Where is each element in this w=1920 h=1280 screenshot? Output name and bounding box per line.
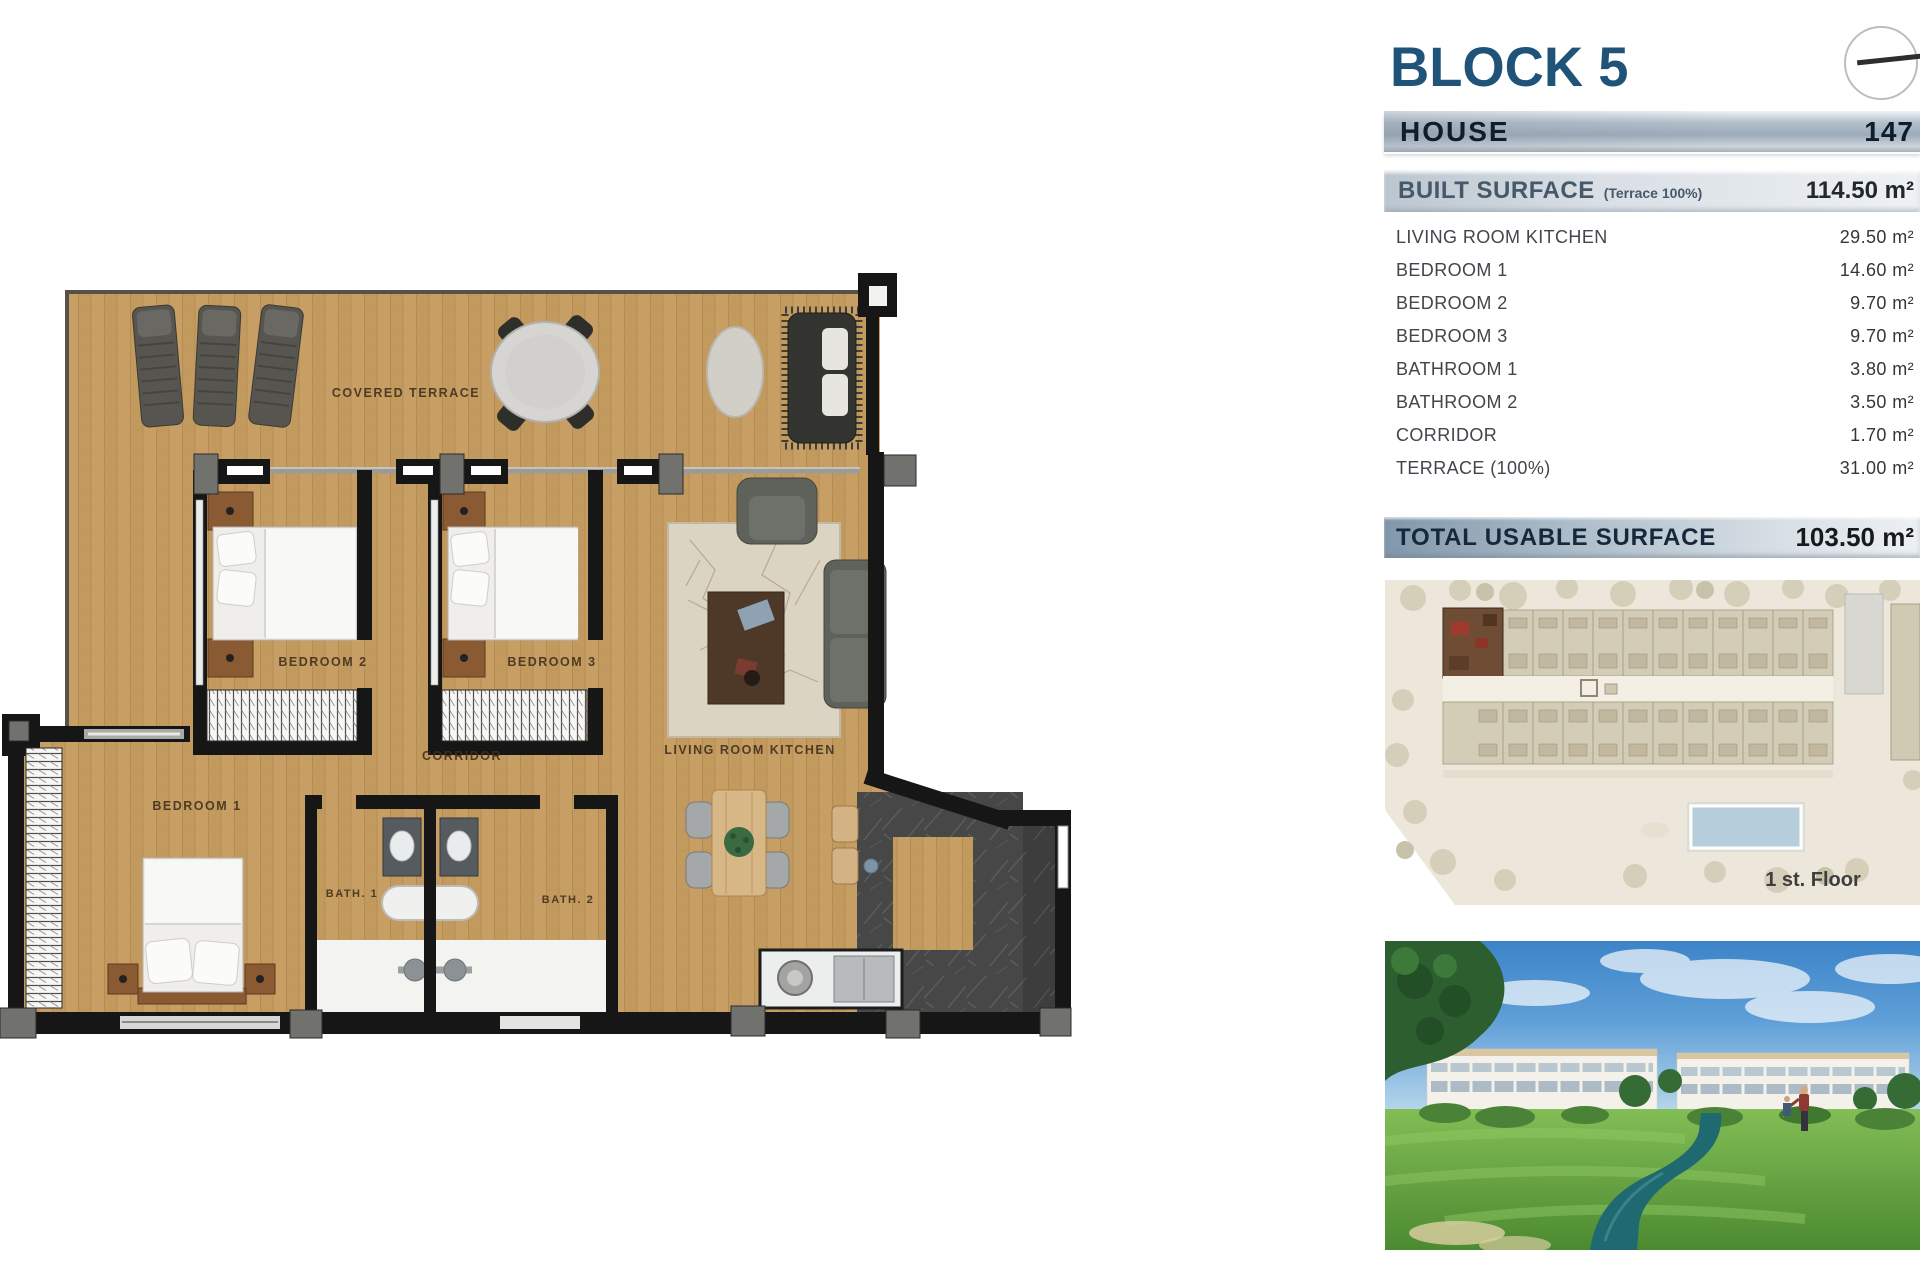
- room-area: 14.60 m²: [1840, 260, 1914, 281]
- room-area: 31.00 m²: [1840, 458, 1914, 479]
- room-area: 9.70 m²: [1850, 326, 1914, 347]
- room-name: BEDROOM 3: [1396, 326, 1508, 347]
- room-name: BATHROOM 1: [1396, 359, 1518, 380]
- room-label-bedroom-1: BEDROOM 1: [152, 799, 241, 813]
- room-row: LIVING ROOM KITCHEN 29.50 m²: [1384, 221, 1920, 254]
- room-label-bath-1: BATH. 1: [326, 888, 378, 900]
- floor-plan: COVERED TERRACE BEDROOM 2 BEDROOM 3 CORR…: [0, 0, 1100, 1070]
- room-area: 3.50 m²: [1850, 392, 1914, 413]
- room-row: BATHROOM 2 3.50 m²: [1384, 386, 1920, 419]
- room-row: TERRACE (100%) 31.00 m²: [1384, 452, 1920, 485]
- house-number: 147: [1864, 116, 1914, 148]
- terrace-sofa-icon: [785, 310, 859, 446]
- house-label: HOUSE: [1400, 116, 1510, 148]
- compass-icon: [1844, 26, 1918, 100]
- terrace-table-icon: [491, 312, 599, 433]
- lounger-icon: [132, 304, 304, 428]
- built-surface-bar: BUILT SURFACE (Terrace 100%) 114.50 m²: [1384, 170, 1920, 212]
- highlighted-unit: [1443, 608, 1503, 678]
- room-row: BATHROOM 1 3.80 m²: [1384, 353, 1920, 386]
- room-label-living-room-kitchen: LIVING ROOM KITCHEN: [664, 743, 836, 757]
- room-label-bath-2: BATH. 2: [542, 894, 594, 906]
- room-area: 9.70 m²: [1850, 293, 1914, 314]
- floor-level-label: 1 st. Floor: [1765, 869, 1861, 891]
- terrace-rug-icon: [707, 327, 763, 417]
- room-name: TERRACE (100%): [1396, 458, 1551, 479]
- room-label-corridor: CORRIDOR: [422, 749, 502, 763]
- room-row: BEDROOM 1 14.60 m²: [1384, 254, 1920, 287]
- room-label-bedroom-2: BEDROOM 2: [278, 655, 367, 669]
- room-row: BEDROOM 2 9.70 m²: [1384, 287, 1920, 320]
- pool: [1691, 806, 1801, 848]
- brochure-page: COVERED TERRACE BEDROOM 2 BEDROOM 3 CORR…: [0, 0, 1920, 1280]
- total-label: TOTAL USABLE SURFACE: [1396, 524, 1716, 552]
- room-label-bedroom-3: BEDROOM 3: [507, 655, 596, 669]
- room-name: LIVING ROOM KITCHEN: [1396, 227, 1608, 248]
- coffee-table-icon: [708, 592, 784, 704]
- block-title: BLOCK 5: [1390, 34, 1628, 99]
- total-usable-surface-bar: TOTAL USABLE SURFACE 103.50 m²: [1384, 517, 1920, 558]
- room-name: CORRIDOR: [1396, 425, 1497, 446]
- site-plan: 1 st. Floor: [1385, 580, 1920, 905]
- room-row: CORRIDOR 1.70 m²: [1384, 419, 1920, 452]
- room-area-list: LIVING ROOM KITCHEN 29.50 m² BEDROOM 1 1…: [1384, 221, 1920, 485]
- resort-photo: [1385, 941, 1920, 1250]
- room-name: BATHROOM 2: [1396, 392, 1518, 413]
- built-surface-label: BUILT SURFACE: [1398, 177, 1595, 205]
- room-name: BEDROOM 2: [1396, 293, 1508, 314]
- room-area: 1.70 m²: [1850, 425, 1914, 446]
- total-value: 103.50 m²: [1795, 522, 1914, 553]
- room-area: 3.80 m²: [1850, 359, 1914, 380]
- room-area: 29.50 m²: [1840, 227, 1914, 248]
- house-bar: HOUSE 147: [1384, 111, 1920, 152]
- built-surface-value: 114.50 m²: [1806, 177, 1914, 205]
- room-label-covered-terrace: COVERED TERRACE: [332, 386, 480, 400]
- armchair-icon: [737, 478, 817, 544]
- room-row: BEDROOM 3 9.70 m²: [1384, 320, 1920, 353]
- room-name: BEDROOM 1: [1396, 260, 1508, 281]
- built-surface-note: (Terrace 100%): [1604, 185, 1703, 201]
